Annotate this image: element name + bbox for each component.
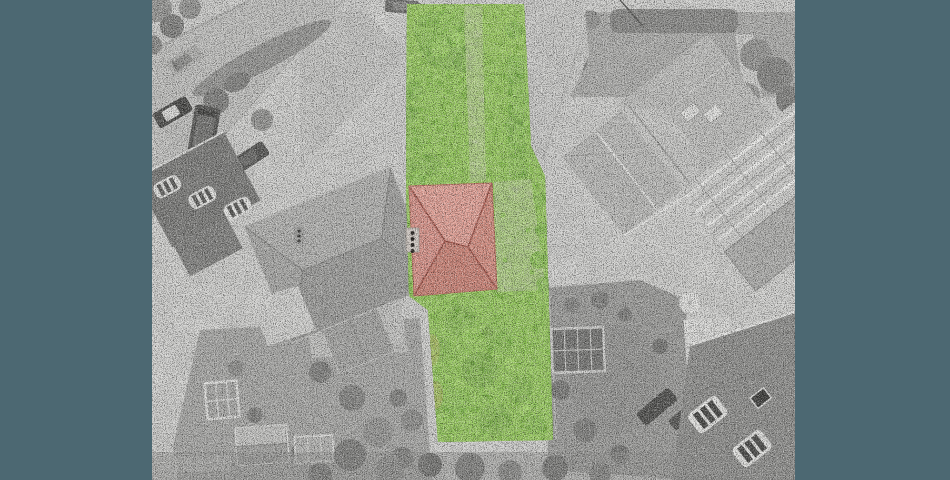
- grain-light-overlay: [152, 0, 795, 480]
- aerial-photo-canvas: [0, 0, 950, 480]
- aerial-photo: [136, 0, 876, 480]
